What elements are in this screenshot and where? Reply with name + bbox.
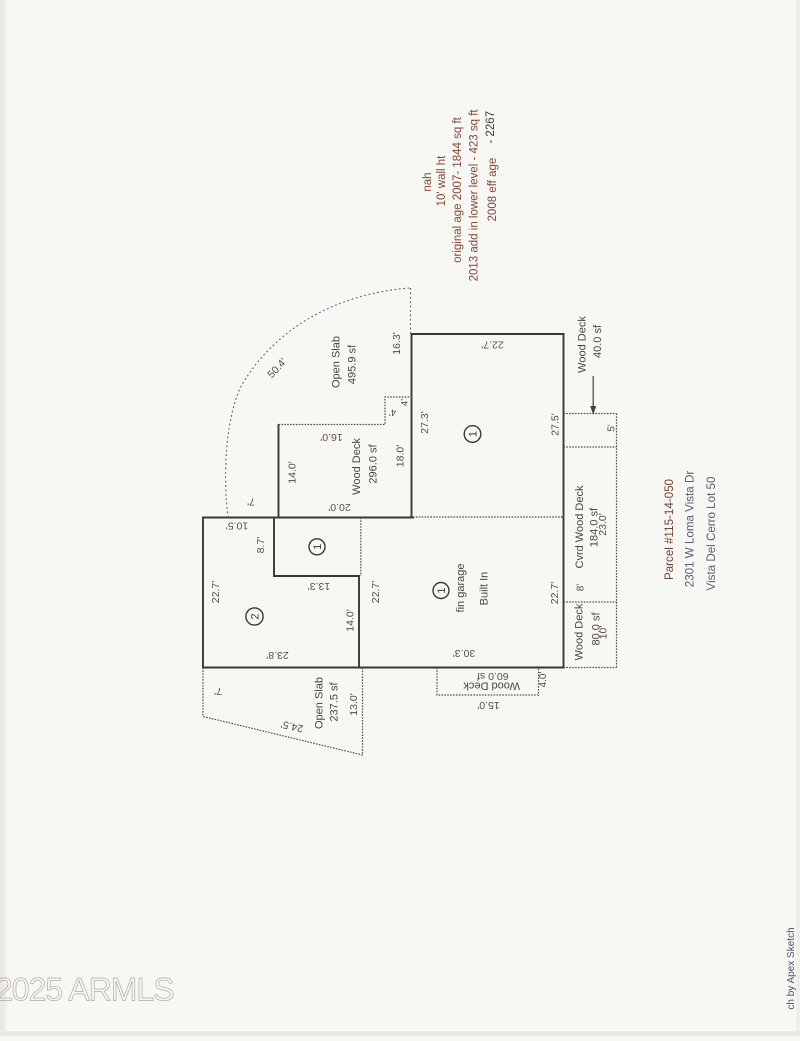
svg-text:22.7': 22.7': [370, 581, 382, 603]
svg-text:27.3': 27.3': [419, 411, 431, 433]
svg-text:Cvrd Wood Deck: Cvrd Wood Deck: [574, 485, 586, 568]
svg-text:22.7': 22.7': [481, 339, 503, 351]
svg-text:Open Slab: Open Slab: [331, 336, 343, 388]
svg-text:4.0': 4.0': [538, 672, 549, 688]
svg-text:14.0': 14.0': [287, 461, 299, 483]
svg-text:nah: nah: [422, 172, 434, 191]
svg-text:fin garage: fin garage: [455, 564, 467, 613]
svg-text:22.7': 22.7': [549, 582, 561, 604]
svg-text:237.5 sf: 237.5 sf: [328, 681, 340, 721]
svg-text:1: 1: [467, 431, 479, 437]
svg-text:16.3': 16.3': [391, 332, 403, 354]
svg-text:2013 add in lower level - 423: 2013 add in lower level - 423 sq ft: [469, 109, 481, 282]
svg-text:5': 5': [607, 424, 618, 432]
svg-text:495.9 sf: 495.9 sf: [347, 344, 359, 384]
svg-text:23.8': 23.8': [266, 649, 288, 661]
svg-text:7': 7': [247, 496, 255, 508]
svg-text:30.3': 30.3': [453, 647, 475, 659]
svg-text:1: 1: [436, 587, 448, 593]
svg-text:296.0 sf: 296.0 sf: [368, 443, 380, 483]
svg-text:20.0': 20.0': [328, 501, 350, 513]
svg-text:8.7': 8.7': [255, 537, 267, 554]
svg-text:18.0': 18.0': [395, 445, 407, 467]
svg-text:2: 2: [249, 613, 261, 619]
svg-text:Parcel #115-14-050: Parcel #115-14-050: [663, 479, 676, 580]
svg-text:Wood Deck: Wood Deck: [351, 438, 363, 495]
svg-text:Open Slab: Open Slab: [313, 677, 325, 729]
svg-text:4': 4': [400, 399, 411, 406]
svg-text:8': 8': [576, 584, 587, 592]
svg-text:13.0': 13.0': [348, 693, 360, 715]
svg-text:2008 eff age: 2008 eff age: [487, 158, 499, 222]
svg-text:27.5': 27.5': [550, 413, 562, 435]
svg-text:- 2267: - 2267: [485, 111, 497, 144]
svg-text:16.0': 16.0': [320, 431, 342, 443]
svg-text:40.0 sf: 40.0 sf: [592, 324, 604, 358]
svg-text:14.0': 14.0': [345, 609, 357, 631]
svg-text:13.3': 13.3': [308, 580, 330, 592]
svg-text:7': 7': [214, 685, 222, 697]
svg-text:10' wall ht: 10' wall ht: [436, 155, 448, 207]
svg-text:2025 ARMLS: 2025 ARMLS: [0, 972, 174, 1008]
svg-text:1: 1: [312, 544, 324, 550]
svg-text:184.0 sf: 184.0 sf: [589, 507, 601, 547]
svg-text:Wood Deck: Wood Deck: [577, 316, 589, 373]
svg-text:Vista Del Cerro Lot 50: Vista Del Cerro Lot 50: [705, 477, 718, 591]
svg-text:15.0': 15.0': [477, 699, 499, 711]
svg-text:original age 2007- 1844 sq ft: original age 2007- 1844 sq ft: [452, 116, 464, 263]
svg-text:2301 W Loma Vista Dr: 2301 W Loma Vista Dr: [683, 471, 696, 588]
svg-text:Wood Deck: Wood Deck: [573, 603, 585, 660]
svg-text:10.5': 10.5': [226, 520, 248, 532]
svg-text:4': 4': [389, 407, 396, 418]
svg-text:22.7': 22.7': [210, 581, 222, 603]
svg-text:80.0 sf: 80.0 sf: [591, 612, 603, 646]
svg-text:ch by Apex Sketch: ch by Apex Sketch: [786, 927, 797, 1009]
svg-text:Built In: Built In: [479, 572, 491, 606]
svg-text:Wood Deck: Wood Deck: [463, 680, 520, 692]
